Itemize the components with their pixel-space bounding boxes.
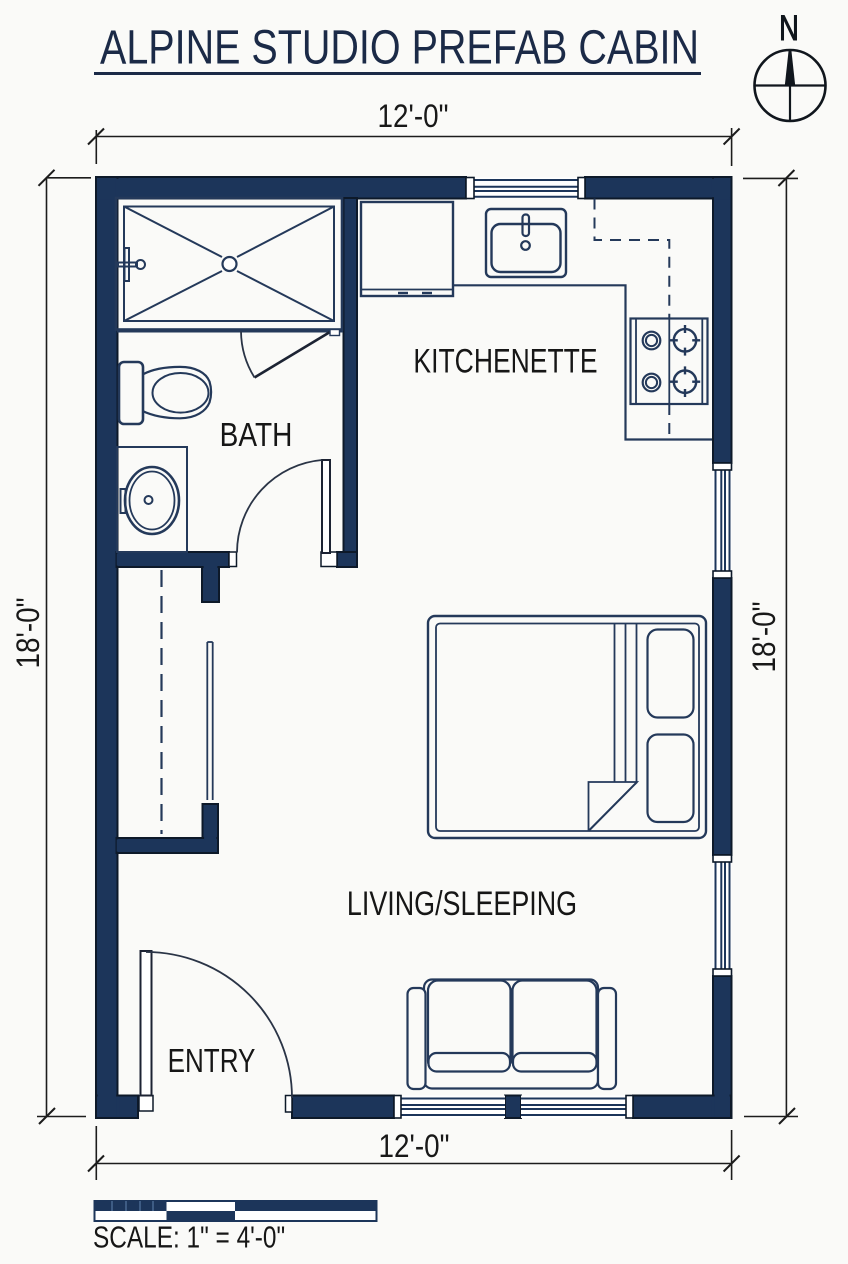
- svg-text:N: N: [779, 9, 799, 48]
- svg-text:12'-0": 12'-0": [378, 99, 449, 134]
- svg-text:18'-0": 18'-0": [11, 598, 46, 669]
- svg-text:BATH: BATH: [220, 417, 293, 454]
- svg-text:ENTRY: ENTRY: [168, 1043, 256, 1080]
- svg-text:18'-0": 18'-0": [747, 602, 782, 673]
- svg-text:ALPINE STUDIO PREFAB CABIN: ALPINE STUDIO PREFAB CABIN: [100, 21, 699, 75]
- svg-text:SCALE: 1" = 4'-0": SCALE: 1" = 4'-0": [93, 1220, 285, 1254]
- svg-text:LIVING/SLEEPING: LIVING/SLEEPING: [347, 884, 577, 923]
- svg-text:KITCHENETTE: KITCHENETTE: [413, 342, 597, 380]
- svg-text:12'-0": 12'-0": [379, 1129, 450, 1164]
